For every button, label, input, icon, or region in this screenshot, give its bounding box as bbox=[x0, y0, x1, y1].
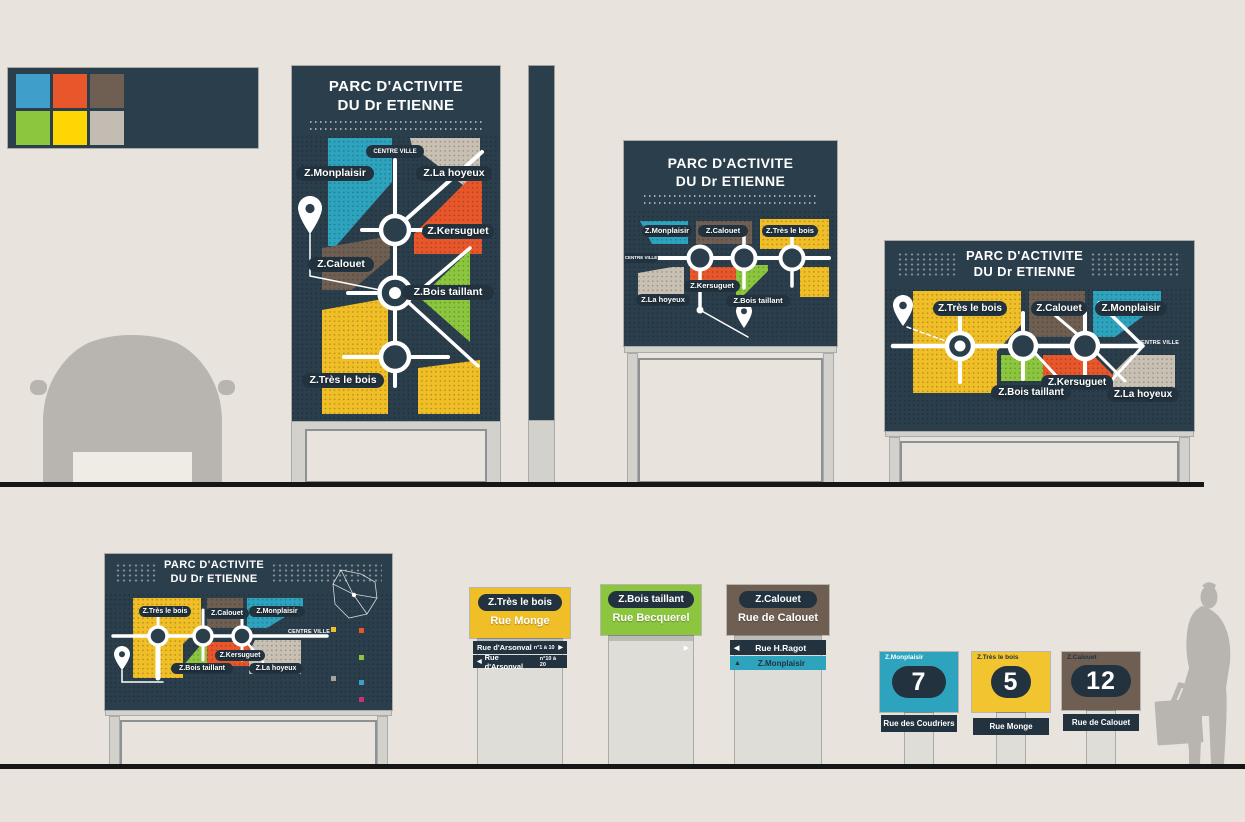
palette-swatch-orange bbox=[53, 74, 87, 108]
title-dots bbox=[897, 252, 959, 276]
sign-title-line1: PARC D'ACTIVITE bbox=[292, 78, 500, 97]
legend-dot-yellow bbox=[331, 627, 336, 632]
street-bar: Rue Monge bbox=[973, 718, 1049, 735]
person-silhouette bbox=[1148, 580, 1244, 770]
title-dots bbox=[1090, 252, 1182, 276]
legend-dot-gray bbox=[331, 676, 336, 681]
zone-name: Z.Très le bois bbox=[977, 655, 1019, 662]
direction-range: n°10 à 20 bbox=[540, 656, 563, 668]
zone-label-monplaisir: Z.Monplaisir bbox=[1095, 301, 1167, 316]
centre-ville-label: CENTRE VILLE bbox=[1137, 341, 1179, 347]
direction-street: Rue d'Arsonval bbox=[485, 653, 538, 671]
zone-label-la-hoyeux: Z.La hoyeux bbox=[416, 166, 492, 181]
street-name: Rue Monge bbox=[470, 615, 570, 627]
zone-label-tres-le-bois: Z.Très le bois bbox=[139, 606, 191, 617]
zone-label-monplaisir: Z.Monplaisir bbox=[642, 225, 692, 237]
street-name: Rue Becquerel bbox=[601, 612, 701, 624]
arrow-left-icon: ◀ bbox=[477, 658, 482, 665]
centre-ville-label: CENTRE VILLE bbox=[288, 630, 330, 636]
arrow-left-icon: ◀ bbox=[734, 644, 739, 652]
legend-dot-magenta bbox=[359, 697, 364, 702]
street-bar: Rue des Coudriers bbox=[881, 715, 957, 732]
direction-street: Rue H.Ragot bbox=[755, 643, 806, 653]
territory-sketch bbox=[329, 568, 381, 622]
title-dots bbox=[310, 121, 482, 131]
direction-bar: ◀ Rue d'Arsonval n°10 à 20 bbox=[473, 655, 567, 668]
design-board: PARC D'ACTIVITE DU Dr ETIENNE bbox=[0, 0, 1245, 822]
sign-wide-small-stand bbox=[105, 710, 392, 766]
direction-zone: Z.Monplaisir bbox=[758, 659, 805, 668]
zone-label-kersuguet: Z.Kersuguet bbox=[684, 280, 740, 292]
number-pill: 12 bbox=[1071, 665, 1131, 697]
centre-ville-label: CENTRE VILLE bbox=[366, 145, 424, 158]
title-dots bbox=[644, 195, 817, 205]
street-sign-header: Z.Bois taillant Rue Becquerel bbox=[601, 585, 701, 635]
zone-label-monplaisir: Z.Monplaisir bbox=[296, 166, 374, 181]
palette-swatch-blue bbox=[16, 74, 50, 108]
map-horizontal-wide: CENTRE VILLE Z.Très le bois Z.Calouet Z.… bbox=[885, 289, 1194, 427]
zone-label-monplaisir: Z.Monplaisir bbox=[249, 606, 305, 617]
zone-name: Z.Monplaisir bbox=[885, 655, 923, 662]
street-name: Rue de Calouet bbox=[727, 612, 829, 624]
map-horizontal-medium: CENTRE VILLE Z.Monplaisir Z.Calouet Z.Tr… bbox=[624, 211, 837, 341]
direction-street: Rue d'Arsonval bbox=[477, 643, 532, 652]
zone-label-la-hoyeux: Z.La hoyeux bbox=[1107, 387, 1179, 402]
zone-name: Z.Calouet bbox=[1067, 655, 1097, 662]
centre-ville-label: CENTRE VILLE bbox=[624, 253, 658, 263]
zone-pill: Z.Bois taillant bbox=[608, 591, 694, 608]
zone-label-calouet: Z.Calouet bbox=[1031, 301, 1087, 316]
arrow-up-icon: ▲ bbox=[734, 660, 741, 667]
zone-label-calouet: Z.Calouet bbox=[698, 225, 748, 237]
ground-line-bottom bbox=[0, 764, 1245, 769]
number-pill: 7 bbox=[892, 666, 946, 698]
zone-label-bois-taillant: Z.Bois taillant bbox=[991, 385, 1071, 400]
zone-label-tres-le-bois: Z.Très le bois bbox=[933, 301, 1007, 316]
direction-bar: ◀ Rue H.Ragot bbox=[730, 640, 826, 655]
sign-title-line2: DU Dr ETIENNE bbox=[292, 97, 500, 116]
zone-label-kersuguet: Z.Kersuguet bbox=[422, 224, 494, 239]
sign-wide-stand bbox=[885, 431, 1194, 483]
zone-label-tres-le-bois: Z.Très le bois bbox=[762, 225, 818, 237]
zone-pill: Z.Calouet bbox=[739, 591, 817, 608]
arrow-right-icon: ▶ bbox=[558, 644, 563, 651]
zone-label-tres-le-bois: Z.Très le bois bbox=[302, 373, 384, 388]
sign-title-line2: DU Dr ETIENNE bbox=[624, 173, 837, 191]
zone-label-calouet: Z.Calouet bbox=[205, 608, 249, 619]
palette-swatch-green bbox=[16, 111, 50, 145]
sign-title-line1: PARC D'ACTIVITE bbox=[164, 559, 264, 573]
sign-title-line1: PARC D'ACTIVITE bbox=[966, 248, 1083, 264]
street-bar: Rue de Calouet bbox=[1063, 714, 1139, 731]
street-sign-header: Z.Calouet Rue de Calouet bbox=[727, 585, 829, 635]
ground-line-top bbox=[0, 482, 1204, 487]
legend-dot-orange bbox=[359, 628, 364, 633]
legend-dot-blue bbox=[359, 680, 364, 685]
zone-label-calouet: Z.Calouet bbox=[308, 257, 374, 272]
palette-swatch-gray bbox=[90, 111, 124, 145]
car-silhouette bbox=[30, 326, 235, 484]
zone-label-bois-taillant: Z.Bois taillant bbox=[171, 663, 233, 674]
street-sign-header: Z.Très le bois Rue Monge bbox=[470, 588, 570, 638]
palette-plate bbox=[8, 68, 258, 148]
sign-title-line2: DU Dr ETIENNE bbox=[164, 573, 264, 587]
palette-swatch-yellow bbox=[53, 111, 87, 145]
sign-title-line2: DU Dr ETIENNE bbox=[966, 264, 1083, 280]
number-pill: 5 bbox=[991, 666, 1031, 698]
palette-swatch-brown bbox=[90, 74, 124, 108]
zone-pill: Z.Très le bois bbox=[478, 594, 562, 611]
map-vertical: CENTRE VILLE Z.Monplaisir Z.La hoyeux Z.… bbox=[292, 136, 500, 421]
zone-label-la-hoyeux: Z.La hoyeux bbox=[249, 663, 303, 674]
zone-label-kersuguet: Z.Kersuguet bbox=[215, 650, 265, 661]
sign-medium-stand bbox=[624, 346, 837, 483]
arrow-right-icon: ▶ bbox=[684, 644, 689, 652]
legend-dot-green bbox=[359, 655, 364, 660]
zone-label-la-hoyeux: Z.La hoyeux bbox=[636, 294, 690, 306]
direction-range: n°1 à 10 bbox=[534, 645, 555, 651]
zone-label-bois-taillant: Z.Bois taillant bbox=[726, 295, 790, 307]
title-dots bbox=[115, 563, 157, 583]
sign-large-stand bbox=[292, 422, 500, 483]
direction-bar: ▲ Z.Monplaisir bbox=[730, 656, 826, 670]
sign-title-line1: PARC D'ACTIVITE bbox=[624, 155, 837, 173]
zone-label-bois-taillant: Z.Bois taillant bbox=[402, 285, 494, 300]
